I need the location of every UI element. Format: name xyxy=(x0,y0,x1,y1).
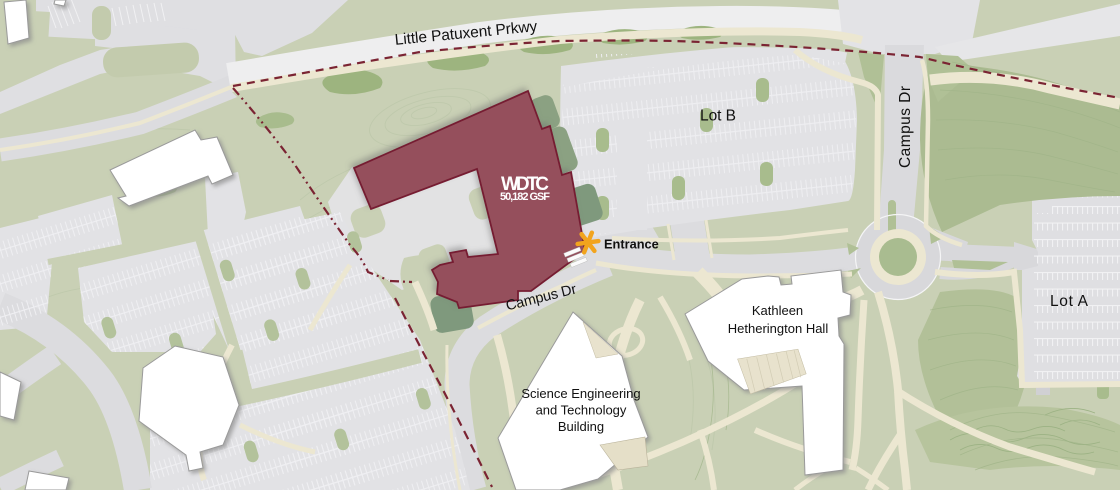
svg-text:Science Engineering: Science Engineering xyxy=(521,386,640,401)
svg-text:Lot B: Lot B xyxy=(700,108,736,125)
svg-text:Campus Dr: Campus Dr xyxy=(897,86,914,168)
svg-text:Lot A: Lot A xyxy=(1050,293,1089,310)
svg-text:Entrance: Entrance xyxy=(604,237,659,252)
svg-text:Kathleen: Kathleen xyxy=(752,303,803,318)
svg-text:Hetherington Hall: Hetherington Hall xyxy=(728,321,829,336)
svg-text:Building: Building xyxy=(558,419,604,434)
svg-text:50,182 GSF: 50,182 GSF xyxy=(500,191,550,203)
svg-text:and Technology: and Technology xyxy=(536,403,627,418)
